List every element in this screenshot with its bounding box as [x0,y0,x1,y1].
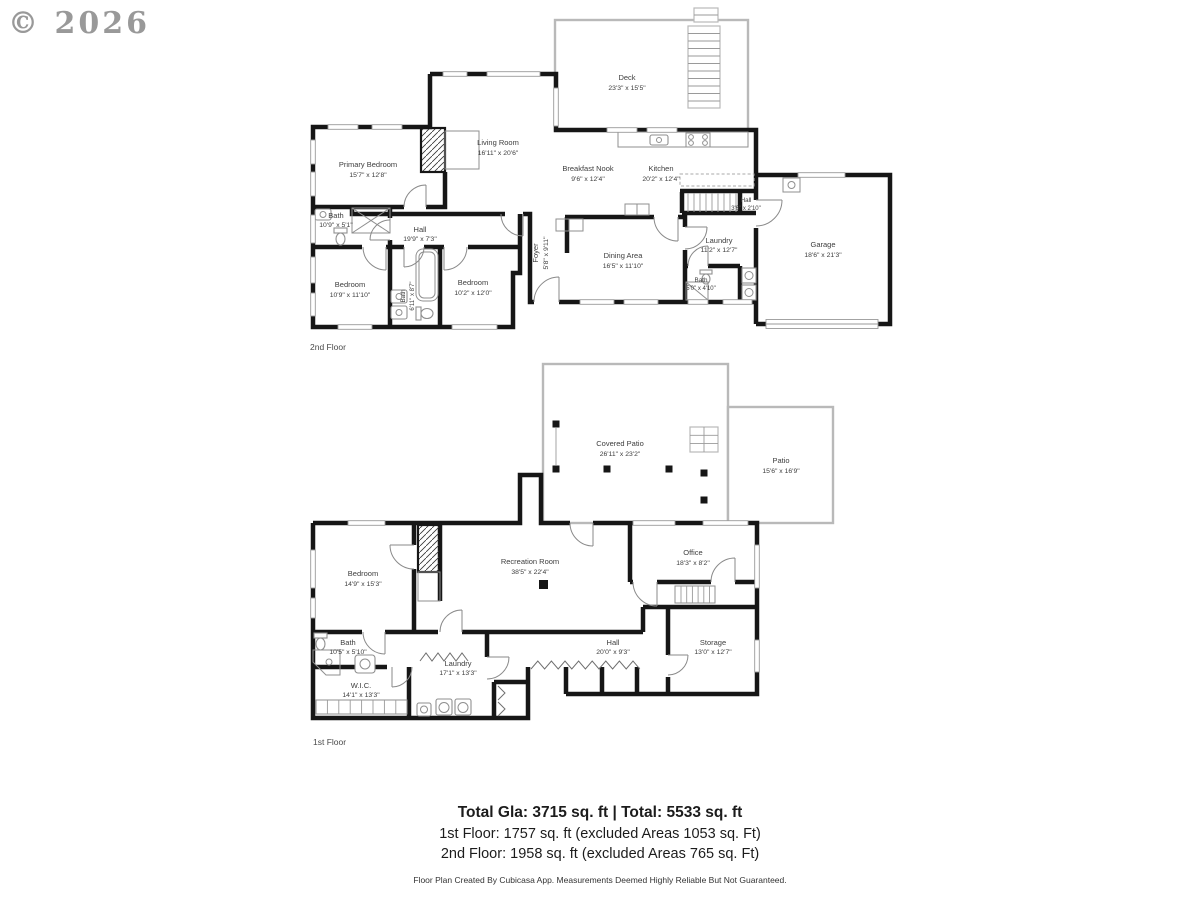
floor-plan-2nd: Deck 23'3" x 15'5" Living Room 16'11" x … [310,8,890,352]
floor-plan-image: Deck 23'3" x 15'5" Living Room 16'11" x … [0,0,1200,900]
room-label-garage: Garage [810,240,835,249]
patio-outline [728,407,833,523]
room-label-dining: Dining Area [604,251,644,260]
first-floor-area-text: 1st Floor: 1757 sq. ft (excluded Areas 1… [0,826,1200,842]
area-summary: Total Gla: 3715 sq. ft | Total: 5533 sq.… [0,804,1200,885]
deck-stairs-icon [688,26,720,108]
room-label-bath-small: Bath [695,277,708,284]
room-label-primary: Primary Bedroom [339,160,397,169]
svg-text:3'6" x 2'10": 3'6" x 2'10" [731,206,761,212]
svg-text:5'0" x 4'10": 5'0" x 4'10" [686,286,716,292]
toilet-icon [314,633,327,650]
room-label-bath2: Bath [400,289,407,302]
room-label-laundry-1st: Laundry [444,659,471,668]
washer-dryer-icon [417,699,471,716]
room-label-bath-1st: Bath [340,638,355,647]
covered-patio-outline [543,364,833,523]
staircase-down-icon [688,193,736,212]
room-label-kitchen: Kitchen [648,164,673,173]
total-area-text: Total Gla: 3715 sq. ft | Total: 5533 sq.… [0,804,1200,822]
svg-text:23'3" x 15'5": 23'3" x 15'5" [608,85,646,92]
staircase-up-icon [675,586,715,603]
toilet-icon [416,307,433,320]
room-label-hall-1st: Hall [607,638,620,647]
room-label-bedroom2: Bedroom [458,278,488,287]
porch-steps-icon [498,686,505,716]
sink-icon [391,306,407,319]
staircase-hatch-2nd [421,128,445,172]
bath-small-fixtures [686,270,712,300]
room-label-bath1: Bath [328,211,343,220]
svg-text:38'5" x 22'4": 38'5" x 22'4" [511,569,549,576]
svg-text:18'3" x 8'2": 18'3" x 8'2" [676,560,710,567]
floor-label-1st: 1st Floor [313,737,346,747]
stair-landing-1st [418,572,440,601]
svg-text:10'9" x 5'1": 10'9" x 5'1" [319,222,353,229]
svg-text:10'9" x 11'10": 10'9" x 11'10" [330,292,371,299]
kitchen-sink-icon [650,135,668,145]
room-label-bedroom1: Bedroom [335,280,365,289]
floor-plan-1st: Covered Patio 26'11" x 23'2" Patio 15'6"… [311,364,833,747]
floor-label-2nd: 2nd Floor [310,342,346,352]
svg-text:14'1" x 13'3": 14'1" x 13'3" [342,692,380,699]
room-label-office: Office [683,548,702,557]
svg-text:16'5" x 11'10": 16'5" x 11'10" [603,263,644,270]
support-post [539,580,548,589]
room-label-laundry2: Laundry [705,236,732,245]
room-label-deck: Deck [618,73,635,82]
accordion-doors-hall [531,661,640,669]
svg-text:9'6" x 12'4": 9'6" x 12'4" [571,176,605,183]
second-floor-area-text: 2nd Floor: 1958 sq. ft (excluded Areas 7… [0,846,1200,862]
svg-text:10'5" x 5'10": 10'5" x 5'10" [329,649,367,656]
room-label-patio: Patio [772,456,789,465]
room-label-nook: Breakfast Nook [562,164,614,173]
svg-text:20'2" x 12'4": 20'2" x 12'4" [642,176,680,183]
staircase-hatch-1st [418,525,440,572]
room-label-hall2: Hall [414,225,427,234]
room-label-bedroom-1st: Bedroom [348,569,378,578]
svg-text:15'6" x 16'9": 15'6" x 16'9" [762,468,800,475]
room-label-foyer: Foyer [531,243,540,263]
closet-row-wic [316,700,407,714]
bathtub-icon [416,249,438,301]
room-label-hall-small: Hall [741,197,752,204]
disclaimer-text: Floor Plan Created By Cubicasa App. Meas… [0,875,1200,885]
room-label-storage: Storage [700,638,726,647]
svg-text:20'0" x 9'3": 20'0" x 9'3" [596,649,630,656]
svg-text:6'11" x 8'7": 6'11" x 8'7" [410,281,416,310]
svg-text:14'9" x 15'3": 14'9" x 15'3" [344,581,382,588]
laundry-sink-icon [417,703,431,716]
svg-text:11'2" x 12'7": 11'2" x 12'7" [701,247,738,254]
svg-text:5'8" x 9'11": 5'8" x 9'11" [543,236,550,270]
svg-text:19'9" x 7'3": 19'9" x 7'3" [403,236,437,243]
svg-text:17'1" x 13'3": 17'1" x 13'3" [439,670,477,677]
sink-icon [355,655,375,673]
stove-icon [686,133,710,147]
floor-plan-page: © 2026 [0,0,1200,900]
toilet-icon [334,228,347,245]
closet-2nd [445,131,479,169]
room-label-covered-patio: Covered Patio [596,439,644,448]
svg-text:16'11" x 20'6": 16'11" x 20'6" [478,150,519,157]
svg-text:10'2" x 12'0": 10'2" x 12'0" [454,290,492,297]
svg-text:13'0" x 12'7": 13'0" x 12'7" [694,649,732,656]
svg-text:18'6" x 21'3": 18'6" x 21'3" [804,252,842,259]
upper-cabinets-dashed [680,174,754,186]
deck-outline [555,8,748,130]
svg-text:15'7" x 12'8": 15'7" x 12'8" [349,172,387,179]
patio-stairs-icon [690,427,718,452]
kitchen-counter [618,132,754,186]
svg-text:26'11" x 23'2": 26'11" x 23'2" [600,451,641,458]
room-label-living: Living Room [477,138,519,147]
room-label-recreation: Recreation Room [501,557,559,566]
water-heater-icon [783,178,800,192]
room-label-wic: W.I.C. [351,681,371,690]
